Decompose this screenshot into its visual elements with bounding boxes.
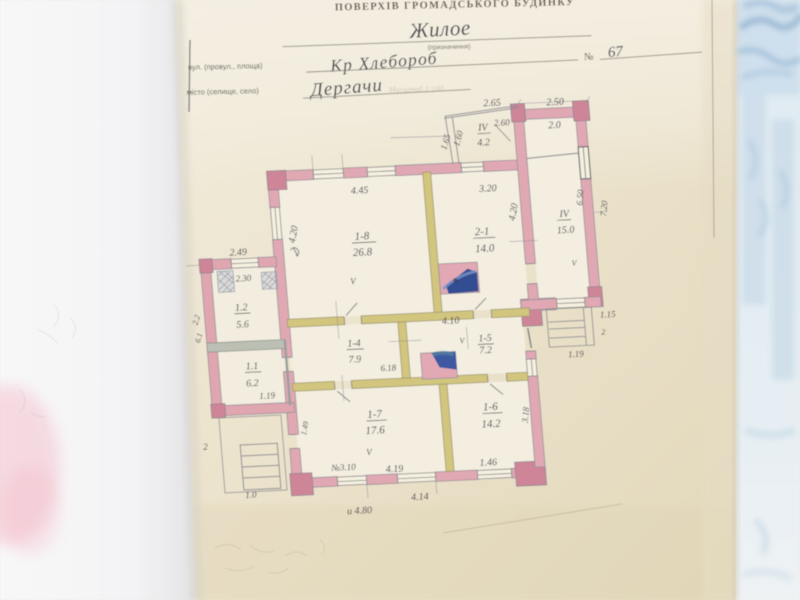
svg-text:Масштаб 1:100: Масштаб 1:100 [388,84,444,94]
svg-text:17.6: 17.6 [365,424,386,437]
svg-text:3.18: 3.18 [520,406,532,424]
svg-text:5.6: 5.6 [236,319,249,331]
svg-text:6.50: 6.50 [574,189,585,206]
svg-text:7.20: 7.20 [598,199,609,216]
svg-text:вул. (провул., площа): вул. (провул., площа) [188,61,263,72]
svg-text:4.19: 4.19 [385,463,403,475]
svg-text:№: № [584,52,594,63]
svg-text:4.45: 4.45 [350,185,368,197]
svg-text:6.2: 6.2 [246,378,259,390]
svg-text:1.19: 1.19 [568,349,585,360]
svg-text:4.14: 4.14 [411,491,429,503]
svg-text:2: 2 [601,327,606,336]
svg-text:1.1: 1.1 [245,361,258,373]
svg-text:1-5: 1-5 [478,333,492,345]
svg-text:26.8: 26.8 [352,246,373,259]
svg-text:и 4.80: и 4.80 [347,505,373,517]
svg-text:14.2: 14.2 [481,418,502,431]
svg-text:Жилое: Жилое [408,15,472,43]
svg-text:2.0: 2.0 [548,120,561,132]
svg-text:2.49: 2.49 [229,247,247,259]
svg-text:14.0: 14.0 [475,242,496,255]
svg-text:1.0: 1.0 [245,489,258,500]
svg-text:4.2: 4.2 [477,137,490,149]
svg-text:1-6: 1-6 [483,401,499,414]
svg-text:15.0: 15.0 [556,225,574,237]
svg-text:2-1: 2-1 [474,226,490,239]
svg-text:2.65: 2.65 [483,98,501,110]
svg-text:місто (селище, село): місто (селище, село) [187,86,260,97]
svg-text:3.20: 3.20 [478,183,497,195]
svg-text:7.2: 7.2 [479,345,492,357]
svg-text:6.18: 6.18 [380,362,397,373]
svg-text:№3.10: №3.10 [330,462,357,473]
svg-text:2.60: 2.60 [493,117,510,128]
svg-text:2.50: 2.50 [546,97,564,109]
svg-text:1-4: 1-4 [347,338,361,350]
svg-text:4.10: 4.10 [441,315,459,327]
svg-text:2.30: 2.30 [235,273,252,284]
svg-text:1.15: 1.15 [600,309,617,320]
svg-text:1.2: 1.2 [235,302,248,314]
svg-text:7.9: 7.9 [348,354,361,366]
svg-text:1-8: 1-8 [354,230,370,243]
svg-text:1-7: 1-7 [367,408,383,421]
svg-text:1.19: 1.19 [259,390,276,401]
svg-text:1.46: 1.46 [479,457,497,469]
